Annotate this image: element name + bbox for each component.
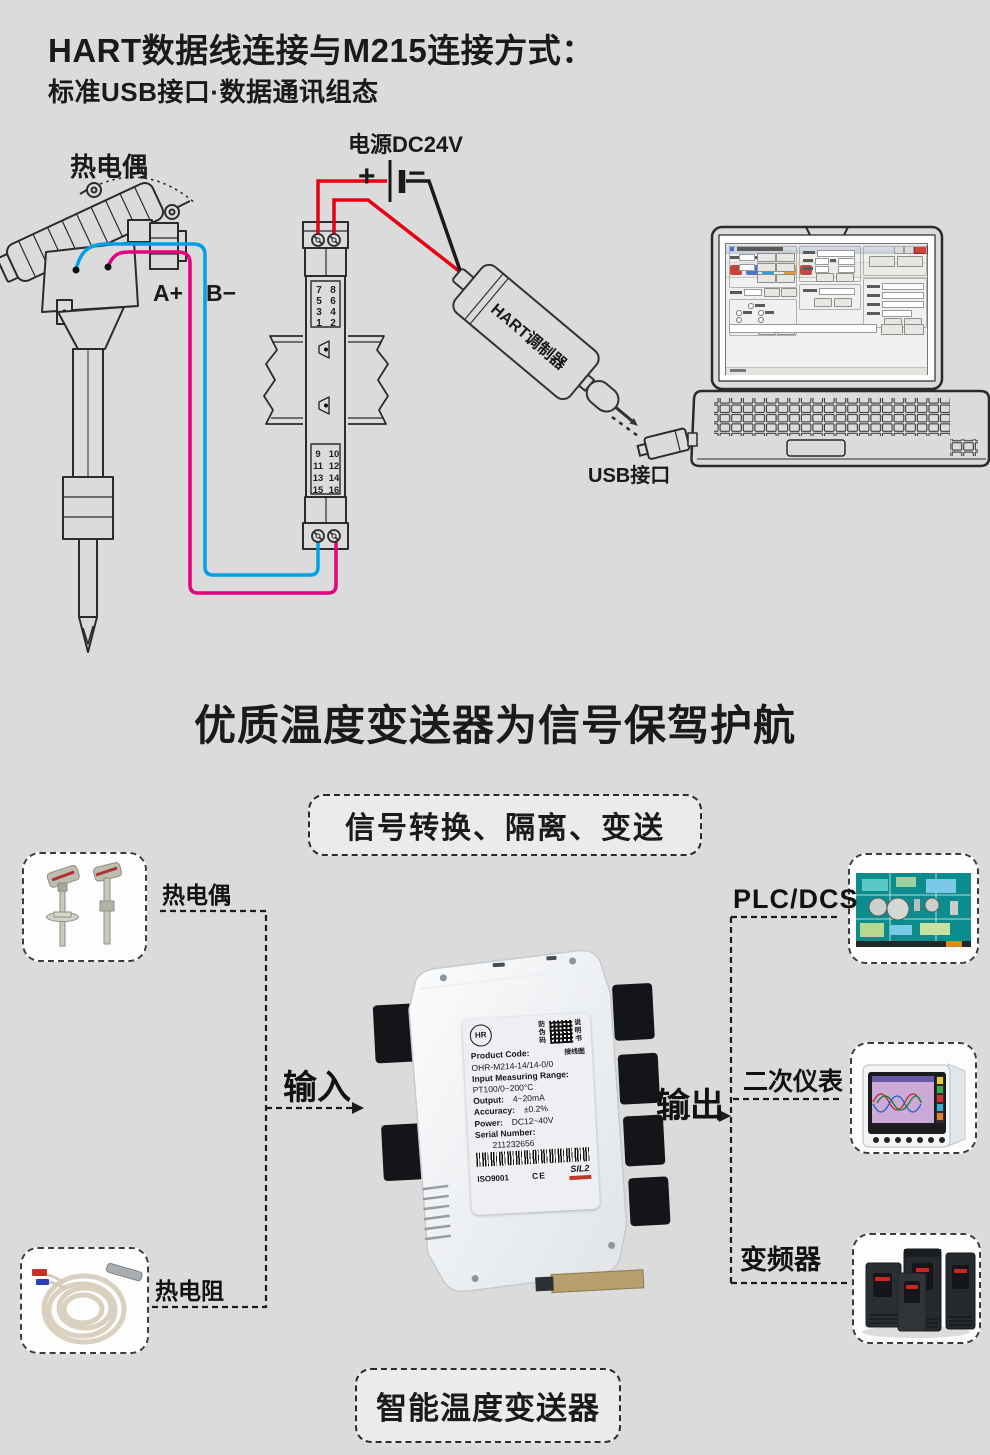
ui-button xyxy=(836,273,854,282)
ui-button xyxy=(776,263,795,272)
ui-radio xyxy=(758,317,764,323)
ui-dropdown xyxy=(744,289,762,296)
brand-logo: HR xyxy=(469,1024,492,1047)
ui-field xyxy=(882,301,924,308)
ui-radio xyxy=(758,310,764,316)
ui-textline xyxy=(730,291,742,294)
manual-text: 说明书 xyxy=(574,1019,584,1043)
product-label: HR 防伪码 说明书 Product Code: 接线图 OHR-M214-14… xyxy=(462,1013,600,1215)
vfd-photo xyxy=(854,1235,979,1342)
ui-button xyxy=(904,324,924,335)
dest-label-plc: PLC/DCS xyxy=(733,884,859,915)
tagline-text: 信号转换、隔离、变送 xyxy=(345,803,665,847)
ui-textline xyxy=(765,311,774,314)
smart-transmitter-box: 智能温度变送器 xyxy=(355,1368,621,1443)
source-label-rtd: 热电阻 xyxy=(155,1272,224,1306)
blue-lead xyxy=(36,1279,49,1285)
thermocouple-photo-box xyxy=(22,852,147,962)
ce-mark: CE xyxy=(532,1171,546,1183)
plc-photo-box xyxy=(848,853,979,964)
vfd-photo-box xyxy=(852,1233,981,1344)
ui-textline xyxy=(830,259,836,262)
ui-field xyxy=(882,283,924,290)
ui-button xyxy=(776,253,795,262)
smart-transmitter-text: 智能温度变送器 xyxy=(376,1383,600,1428)
ui-textline xyxy=(803,259,813,262)
status-text xyxy=(730,369,746,372)
ui-button xyxy=(776,274,795,283)
iso-cert: ISO9001 xyxy=(477,1173,509,1185)
ui-field xyxy=(815,258,829,265)
ui-button xyxy=(757,274,776,283)
ui-field xyxy=(729,324,877,333)
ui-button xyxy=(897,256,923,267)
recorder-photo-box xyxy=(850,1042,977,1154)
ui-textline xyxy=(755,304,765,307)
wiring-diagram-text: 接线图 xyxy=(564,1049,585,1059)
ui-radio xyxy=(736,317,742,323)
ui-radio xyxy=(736,310,742,316)
plc-scada-photo xyxy=(850,855,977,962)
ui-textline xyxy=(743,311,752,314)
ui-button xyxy=(816,273,834,282)
ui-textline xyxy=(803,251,815,254)
rtd-photo xyxy=(22,1249,147,1352)
dest-label-vfd: 变频器 xyxy=(740,1238,821,1277)
red-lead xyxy=(32,1269,47,1276)
tagline-box: 信号转换、隔离、变送 xyxy=(308,794,702,856)
sil-cert: SIL2 xyxy=(569,1163,592,1181)
ui-field xyxy=(838,258,855,265)
ui-button xyxy=(881,324,903,335)
ui-button xyxy=(834,298,852,307)
recorder-photo xyxy=(852,1044,975,1152)
input-branch-line xyxy=(152,911,266,1307)
ui-radio xyxy=(748,303,754,309)
ui-button xyxy=(781,288,797,297)
ui-textline xyxy=(867,294,880,297)
source-label-thermocouple: 热电偶 xyxy=(162,876,231,910)
ui-textline xyxy=(867,285,880,288)
sil-text: SIL2 xyxy=(570,1163,590,1174)
group-box xyxy=(729,246,797,288)
ui-field xyxy=(819,288,855,295)
rtd-photo-box xyxy=(20,1247,149,1354)
ui-button xyxy=(764,288,780,297)
ui-button xyxy=(814,298,832,307)
ui-button xyxy=(757,263,776,272)
ui-field xyxy=(882,310,912,317)
ui-textline xyxy=(867,312,880,315)
transmitter-product-photo: HR 防伪码 说明书 Product Code: 接线图 OHR-M214-14… xyxy=(355,932,685,1317)
dest-label-secondary-instrument: 二次仪表 xyxy=(743,1062,843,1098)
ui-field xyxy=(838,266,855,273)
powerspec-label: Power: xyxy=(474,1117,503,1130)
group-box xyxy=(799,284,861,310)
ui-field xyxy=(739,264,755,271)
sil-chip xyxy=(569,1175,591,1180)
ui-textline xyxy=(803,267,813,270)
thermocouple-photo xyxy=(24,854,145,960)
group-box xyxy=(799,246,861,282)
group-box xyxy=(863,278,927,328)
config-software-window xyxy=(725,243,928,375)
page: HART数据线连接与M215连接方式： 标准USB接口·数据通讯组态 xyxy=(0,0,990,1455)
status-bar xyxy=(726,367,927,375)
ui-button xyxy=(757,253,776,262)
ui-dropdown xyxy=(817,250,855,257)
ui-field xyxy=(815,266,829,273)
ui-textline xyxy=(867,303,880,306)
ui-field xyxy=(739,254,755,261)
banner-headline: 优质温度变送器为信号保驾护航 xyxy=(0,692,990,753)
qr-code-icon xyxy=(549,1020,573,1044)
ui-button xyxy=(869,256,895,267)
ui-textline xyxy=(803,289,817,292)
group-box xyxy=(863,246,927,276)
antifake-text: 防伪码 xyxy=(538,1021,548,1045)
output-label: 输出 xyxy=(656,1078,724,1127)
window-body xyxy=(726,244,927,333)
ui-field xyxy=(882,292,924,299)
powerspec-value: DC12~40V xyxy=(511,1114,553,1127)
input-label: 输入 xyxy=(283,1060,351,1109)
